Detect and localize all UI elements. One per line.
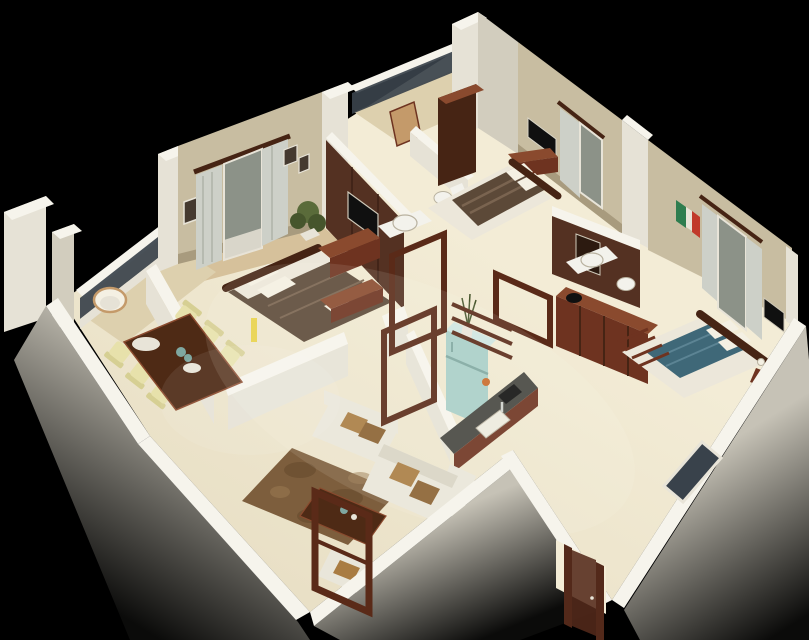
- serving-tray: [132, 337, 160, 351]
- picture-frame: [184, 197, 198, 224]
- washbasin: [393, 215, 417, 231]
- balcony-chair-seat: [100, 296, 120, 310]
- entrance-door-leaf: [572, 550, 596, 636]
- table-decor: [351, 514, 357, 520]
- apartment-3d-floorplan: [0, 0, 809, 640]
- table-lamp: [758, 359, 765, 366]
- curtain: [196, 165, 222, 270]
- curtain: [702, 204, 718, 302]
- door-frame-post: [596, 562, 604, 640]
- floorplan-canvas: [0, 0, 809, 640]
- plate: [176, 347, 186, 357]
- door-frame-post: [564, 544, 572, 628]
- door-knob: [590, 596, 594, 600]
- curtain: [746, 237, 762, 340]
- wall-pillar: [622, 120, 648, 248]
- washbasin: [581, 253, 603, 267]
- light-sheen: [160, 345, 340, 455]
- picture-frame: [299, 154, 309, 173]
- toilet: [617, 278, 635, 291]
- black-bowl: [566, 293, 582, 303]
- corner-post: [786, 246, 798, 330]
- wall-pillar: [158, 146, 178, 272]
